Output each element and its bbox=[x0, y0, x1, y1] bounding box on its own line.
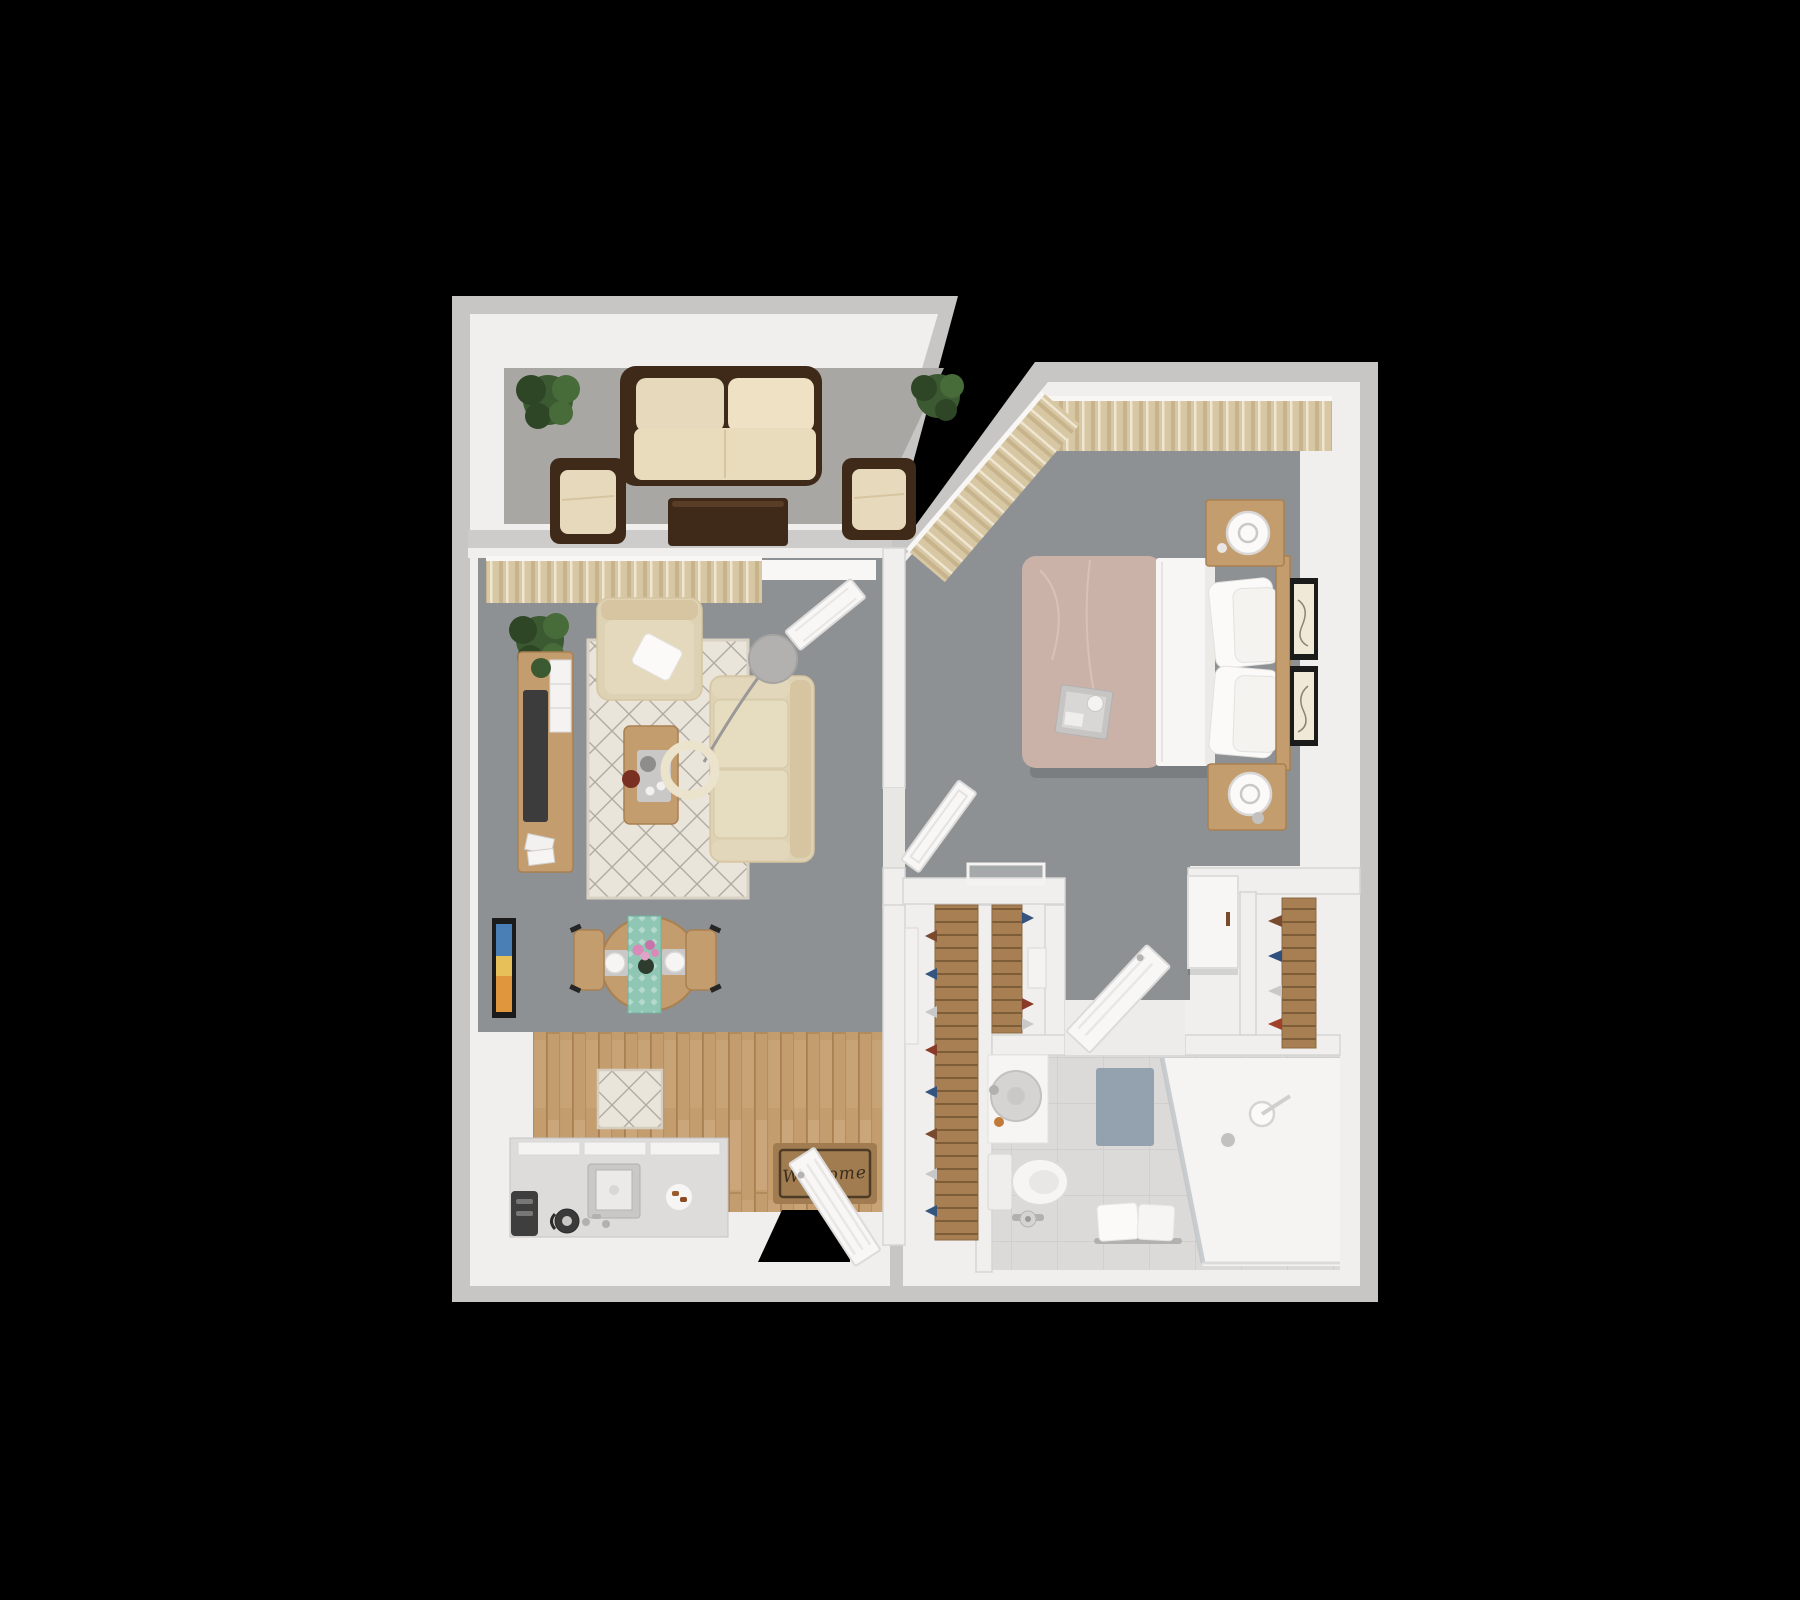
cabinet-top bbox=[518, 1142, 580, 1155]
book bbox=[1064, 711, 1084, 726]
cabinet-handle bbox=[1226, 912, 1230, 926]
armchair-back bbox=[601, 600, 698, 620]
vanity-sink bbox=[988, 1055, 1048, 1143]
desk-fan bbox=[1227, 512, 1269, 554]
seat-cushion bbox=[714, 700, 788, 768]
kitchen-island bbox=[510, 1138, 728, 1237]
cup bbox=[1252, 812, 1264, 824]
curtain-rod bbox=[486, 556, 762, 561]
dining-chair-right bbox=[686, 924, 722, 993]
console-plant bbox=[531, 658, 551, 678]
toaster bbox=[511, 1191, 538, 1236]
living-sofa bbox=[710, 676, 814, 862]
floor-plan-stage: Welcome bbox=[0, 0, 1800, 1600]
cabinet-top bbox=[650, 1142, 720, 1155]
balcony-armchair-right bbox=[842, 458, 916, 540]
clock bbox=[1217, 543, 1227, 553]
magazines bbox=[527, 848, 555, 865]
toilet-tank bbox=[988, 1154, 1012, 1210]
cushion bbox=[560, 470, 616, 534]
curtain-rod bbox=[1038, 396, 1332, 401]
floor-tray bbox=[968, 864, 1044, 884]
bathroom-north-wall-west bbox=[992, 1035, 1065, 1055]
living-curtains bbox=[486, 561, 762, 603]
sofa-armrest bbox=[712, 840, 790, 860]
kitchen-rug bbox=[598, 1070, 662, 1128]
faucet-handle bbox=[582, 1218, 590, 1226]
faucet-spout bbox=[592, 1214, 601, 1219]
lamp-shade bbox=[749, 635, 797, 683]
bedroom-door-frame bbox=[762, 560, 876, 580]
media-console bbox=[518, 652, 573, 872]
shoe-shelf bbox=[992, 905, 1022, 1033]
entry-closet-wall bbox=[883, 905, 905, 1245]
bedroom-curtains-north bbox=[1038, 401, 1332, 451]
faucet bbox=[989, 1085, 999, 1095]
balcony-armchair-left bbox=[550, 458, 626, 544]
towel bbox=[1137, 1204, 1175, 1241]
living-armchair bbox=[597, 598, 702, 700]
desk-fan bbox=[1229, 773, 1271, 815]
balcony-loveseat bbox=[620, 366, 822, 486]
pillows-top bbox=[1208, 577, 1281, 669]
back-cushion bbox=[636, 378, 724, 432]
breakfast-tray bbox=[1055, 685, 1113, 740]
television bbox=[523, 690, 548, 822]
living-bedroom-wall-lower bbox=[883, 868, 905, 908]
shoe-rack bbox=[935, 905, 978, 1240]
teapot bbox=[640, 756, 656, 772]
folded-sheet bbox=[1156, 558, 1208, 766]
dining-chair-left bbox=[569, 924, 604, 994]
toilet bbox=[988, 1154, 1068, 1210]
headboard bbox=[1276, 556, 1290, 770]
nightstand-bottom bbox=[1208, 764, 1286, 830]
bathroom-north-wall-east bbox=[1185, 1035, 1340, 1055]
teacup bbox=[646, 787, 655, 796]
cabinet-top bbox=[584, 1142, 646, 1155]
faucet-handle bbox=[602, 1220, 610, 1228]
walkin-closet-east-wall bbox=[1045, 905, 1065, 1037]
pastry-plate bbox=[665, 1183, 693, 1211]
shower-drain bbox=[1221, 1133, 1235, 1147]
nightstand-top bbox=[1206, 500, 1284, 566]
balcony-coffee-table bbox=[668, 498, 788, 546]
console-drawers bbox=[550, 660, 571, 732]
floor-plan-svg: Welcome bbox=[0, 0, 1800, 1600]
clothes-shelf bbox=[1282, 898, 1316, 1048]
towel bbox=[1097, 1203, 1139, 1242]
cushion bbox=[852, 469, 906, 530]
wall-cabinet bbox=[1188, 876, 1238, 975]
living-bedroom-wall-upper bbox=[883, 548, 905, 788]
bath-rug bbox=[1096, 1068, 1154, 1146]
cooktop-sink-unit bbox=[582, 1164, 640, 1228]
sofa-back bbox=[790, 680, 811, 858]
dining-wall-art bbox=[492, 918, 516, 1018]
storage-shelf bbox=[1028, 948, 1046, 988]
back-cushion bbox=[728, 378, 814, 432]
leaning-mirror bbox=[905, 928, 918, 1044]
decor-bowl bbox=[622, 770, 640, 788]
bedroom-door-threshold bbox=[883, 788, 905, 868]
seat-cushion bbox=[714, 770, 788, 838]
wardrobe-closet-west-wall bbox=[1240, 892, 1256, 1035]
soap bbox=[994, 1117, 1004, 1127]
pillows-bottom bbox=[1208, 665, 1279, 758]
